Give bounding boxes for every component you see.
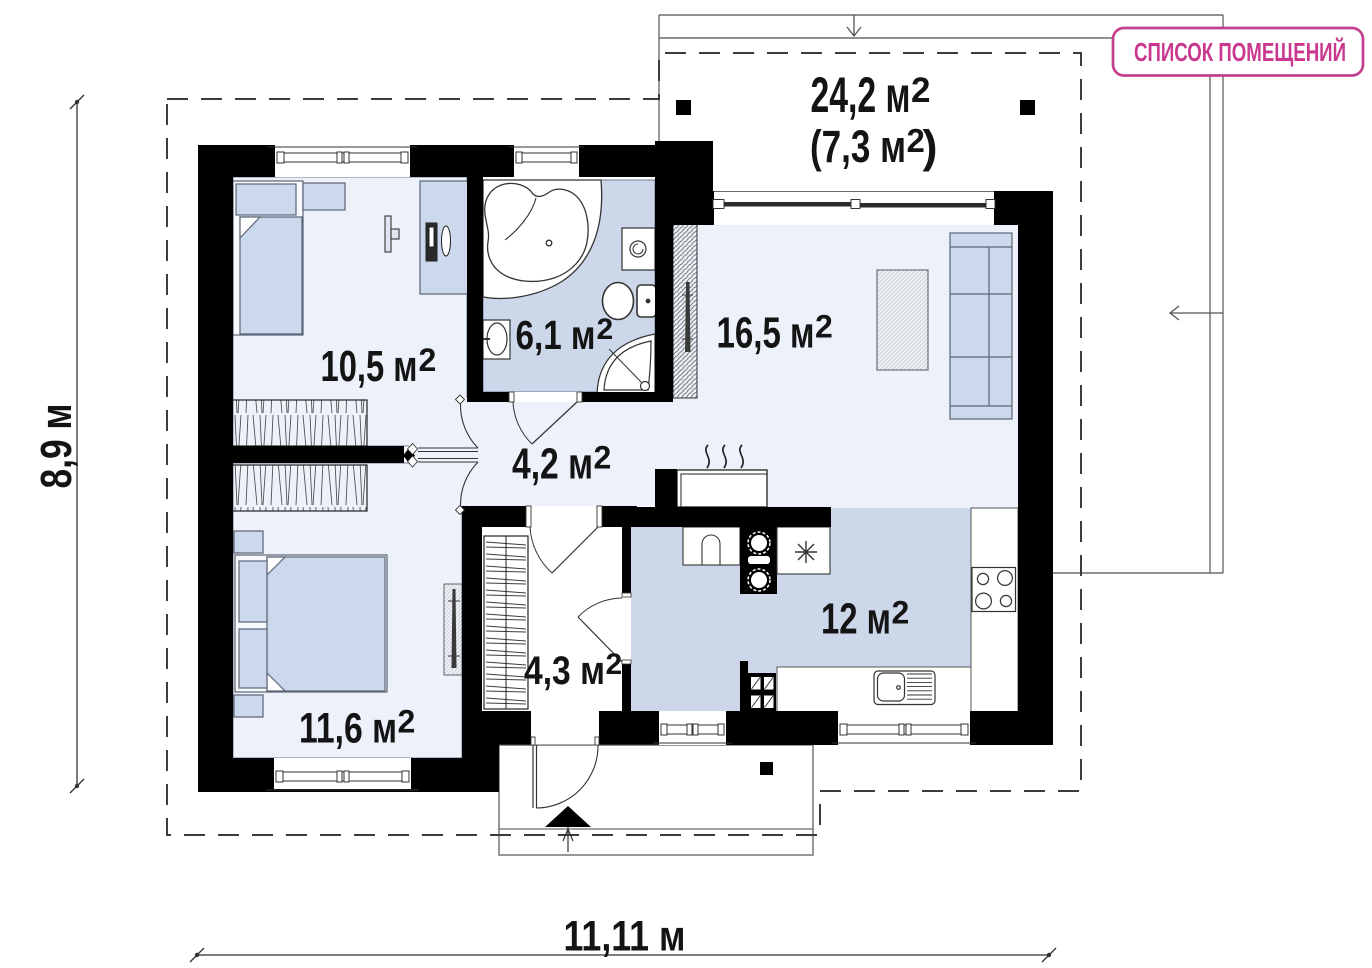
svg-text:4,3 м: 4,3 м: [524, 649, 605, 693]
svg-text:2: 2: [597, 313, 614, 346]
svg-text:2: 2: [419, 342, 437, 378]
svg-text:11,6 м: 11,6 м: [299, 705, 397, 753]
svg-text:2: 2: [911, 71, 930, 110]
svg-text:2: 2: [892, 595, 910, 631]
svg-text:6,1 м: 6,1 м: [516, 312, 596, 358]
svg-text:16,5 м: 16,5 м: [717, 309, 815, 358]
svg-text:2: 2: [606, 648, 623, 681]
svg-text:2: 2: [398, 704, 416, 740]
svg-text:24,2 м: 24,2 м: [811, 67, 911, 123]
svg-text:(7,3 м: (7,3 м: [810, 121, 906, 172]
svg-text:12 м: 12 м: [821, 595, 891, 644]
svg-text:2: 2: [815, 309, 833, 345]
svg-text:11,11 м: 11,11 м: [564, 913, 686, 961]
svg-text:8,9 м: 8,9 м: [32, 404, 81, 489]
svg-text:СПИСОК ПОМЕЩЕНИЙ: СПИСОК ПОМЕЩЕНИЙ: [1134, 37, 1346, 67]
svg-text:4,2 м: 4,2 м: [512, 440, 593, 489]
svg-text:10,5 м: 10,5 м: [321, 342, 418, 391]
svg-text:): ): [923, 121, 938, 172]
svg-text:2: 2: [594, 440, 612, 476]
